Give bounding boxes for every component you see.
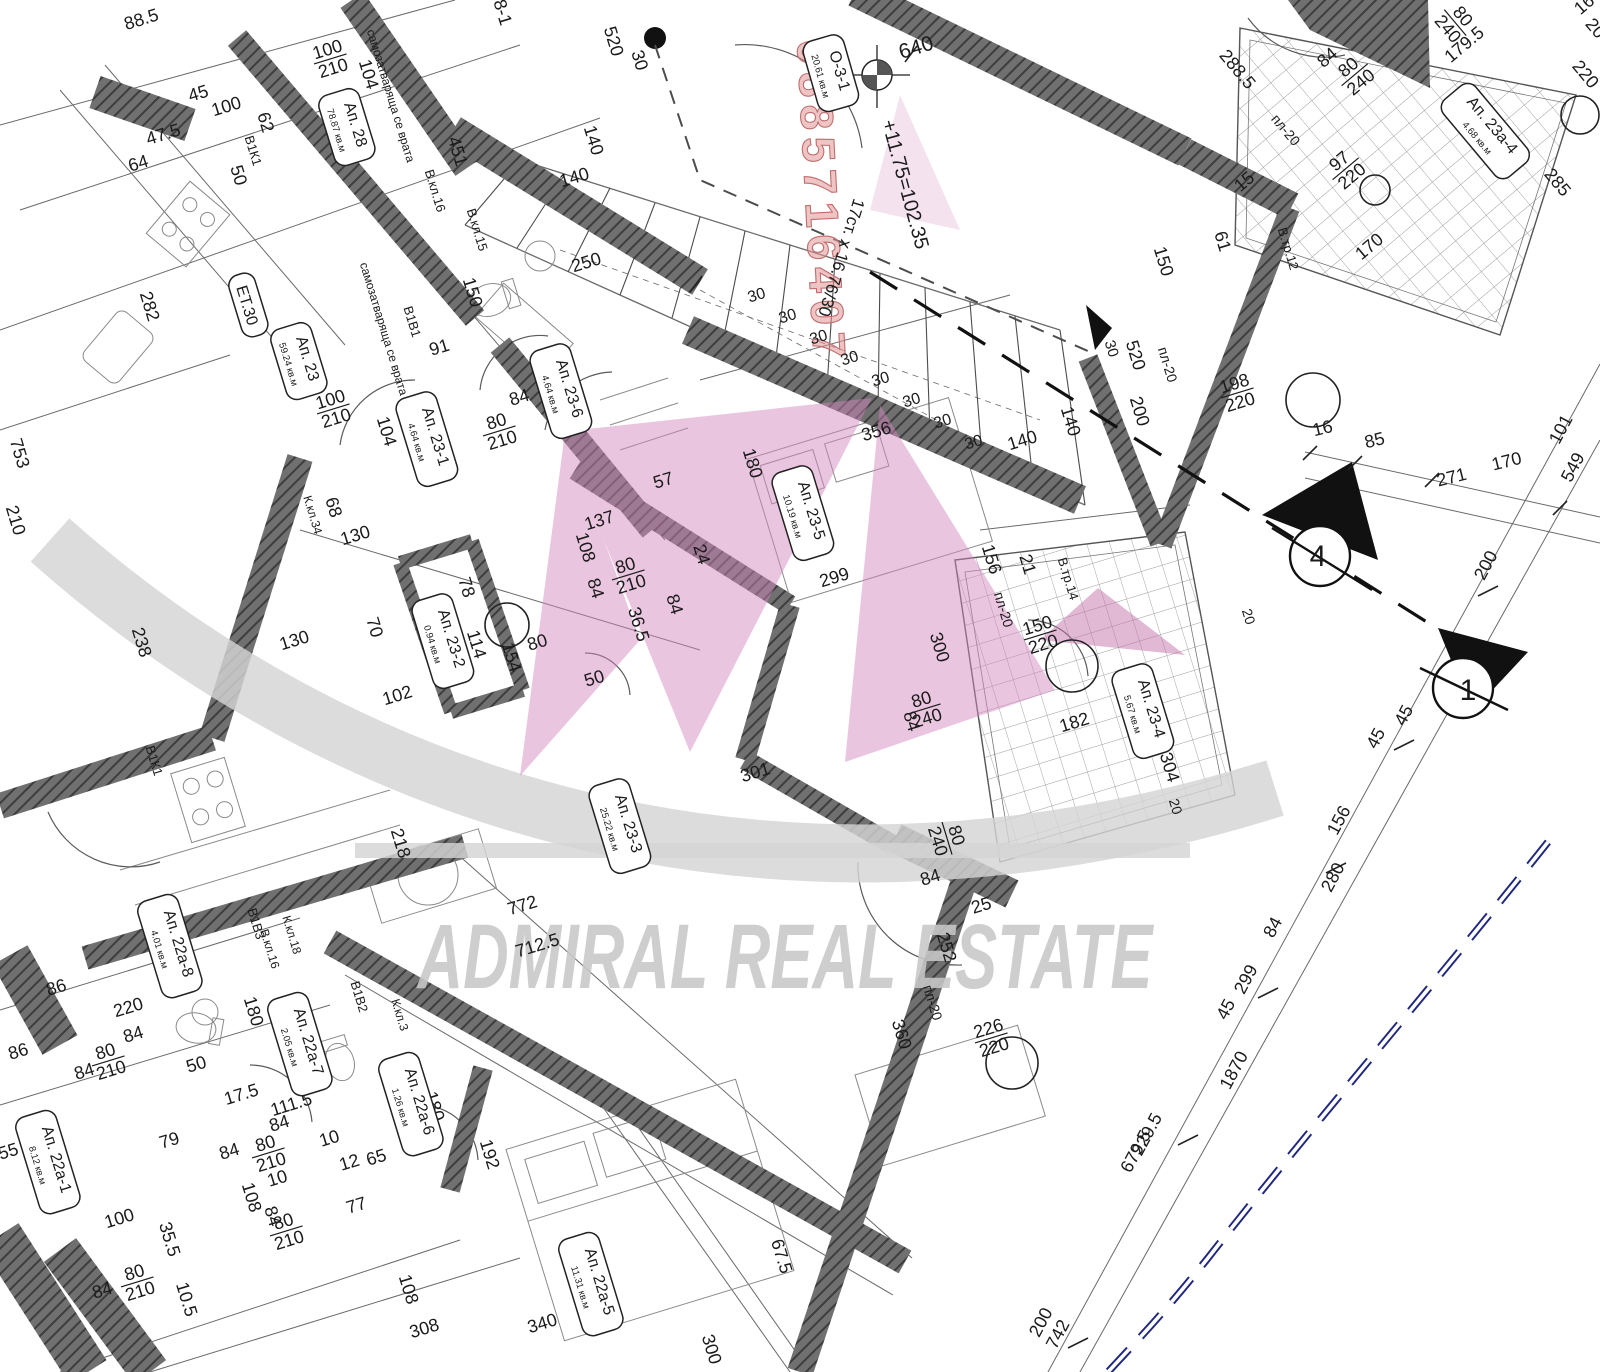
svg-text:1: 1 [1460, 674, 1477, 707]
svg-text:4: 4 [1310, 540, 1327, 573]
floor-plan: ADMIRAL REAL ESTATE 0885716407 4 1 [0, 0, 1600, 1372]
